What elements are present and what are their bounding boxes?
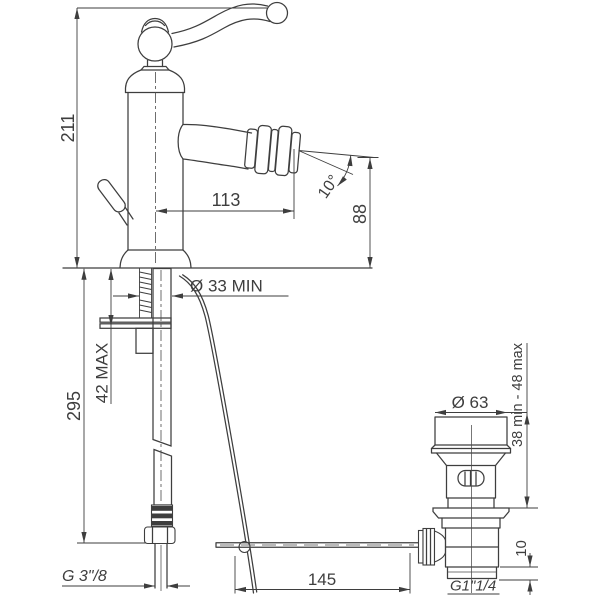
- faucet-handle: [138, 3, 288, 62]
- dim-drain-flange-label: Ø 63: [452, 393, 489, 412]
- dim-mounting-hole-label: Ø 33 MIN: [190, 277, 263, 296]
- drain-assembly: [419, 417, 511, 593]
- hose-ferrule: [152, 505, 173, 527]
- dim-drain-thread-label: G1"1/4: [450, 578, 496, 595]
- pop-up-rod: [180, 275, 419, 593]
- supply-hose: [145, 269, 176, 592]
- dimension-arrowheads: [74, 8, 532, 592]
- dim-total-height-label: 211: [58, 114, 78, 143]
- aerator-rings: [244, 123, 301, 176]
- dim-deck-thickness-label: 42 MAX: [93, 343, 112, 403]
- dim-supply-thread-label: G 3"/8: [62, 568, 107, 585]
- dim-supply-length-label: 295: [64, 391, 84, 421]
- dim-drain-tail-label: 10: [513, 540, 530, 557]
- faucet-outline: [95, 3, 301, 268]
- supply-pipe-g38: [155, 544, 167, 592]
- dim-rod-reach-label: 145: [308, 570, 336, 589]
- hose-hex-nut: [145, 527, 176, 544]
- drain-rod-clevis: [419, 529, 446, 566]
- dim-spout-height-label: 88: [350, 204, 370, 224]
- faucet-spout: [178, 123, 301, 176]
- faucet-body: [120, 61, 191, 268]
- dimension-annotations: 211 295 42 MAX 88 Ø 33 MIN 113 10° Ø 63 …: [58, 8, 538, 595]
- dim-drain-deck-range-label: 38 min - 48 max: [510, 342, 526, 447]
- dim-spout-reach-label: 113: [212, 190, 241, 210]
- bidet-faucet-technical-drawing: 211 295 42 MAX 88 Ø 33 MIN 113 10° Ø 63 …: [0, 0, 600, 600]
- dim-spout-angle-label: 10°: [315, 172, 343, 202]
- drawing-svg: 211 295 42 MAX 88 Ø 33 MIN 113 10° Ø 63 …: [0, 0, 600, 600]
- pop-up-knob: [95, 177, 133, 225]
- drain-overflow-slot: [458, 471, 484, 487]
